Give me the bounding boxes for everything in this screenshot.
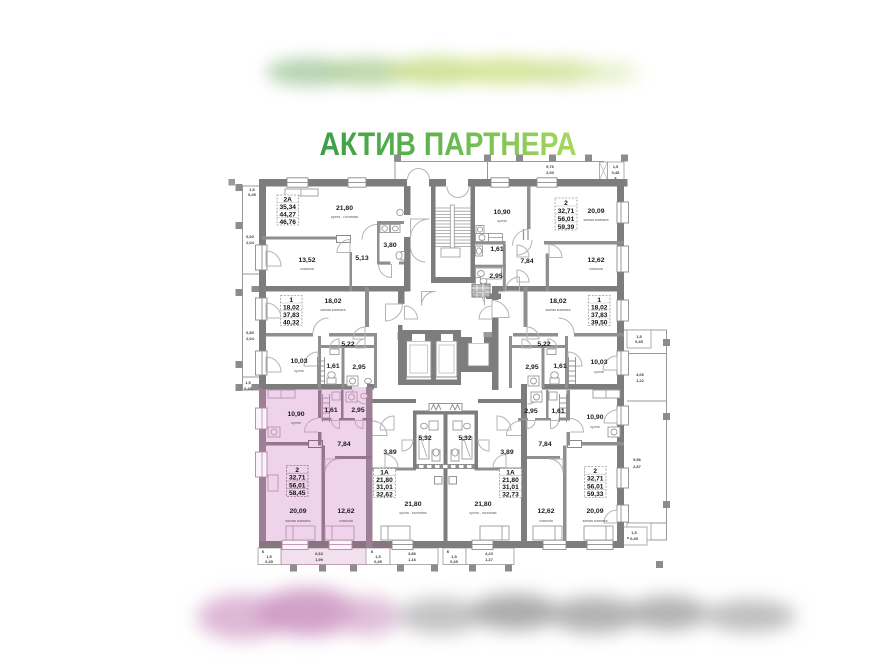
svg-text:спальня: спальня [339, 519, 353, 523]
svg-text:спальня: спальня [589, 267, 603, 271]
svg-text:39,50: 39,50 [591, 319, 608, 326]
svg-text:10,90: 10,90 [586, 414, 603, 421]
svg-text:3,80: 3,80 [383, 242, 396, 249]
svg-text:18,02: 18,02 [283, 304, 300, 311]
svg-text:0,45: 0,45 [374, 559, 383, 564]
svg-text:18,02: 18,02 [591, 304, 608, 311]
svg-text:2,04: 2,04 [246, 240, 255, 245]
svg-text:35,34: 35,34 [279, 204, 296, 211]
svg-text:31,01: 31,01 [376, 484, 393, 491]
svg-text:1,5: 1,5 [245, 380, 251, 385]
svg-text:3,86: 3,86 [408, 551, 417, 556]
svg-text:40,32: 40,32 [283, 319, 300, 326]
svg-text:0,45: 0,45 [244, 386, 253, 391]
svg-text:10,03: 10,03 [590, 359, 607, 366]
svg-text:18,02: 18,02 [549, 298, 566, 305]
svg-text:кухня - гостиная: кухня - гостиная [331, 215, 358, 219]
svg-text:3,89: 3,89 [500, 449, 513, 456]
svg-text:2,95: 2,95 [352, 364, 365, 371]
svg-text:5,13: 5,13 [355, 255, 368, 262]
svg-text:жилая комната: жилая комната [545, 308, 570, 312]
svg-text:21,80: 21,80 [336, 205, 353, 212]
svg-text:59,39: 59,39 [558, 224, 575, 231]
svg-text:7,84: 7,84 [520, 258, 533, 265]
svg-text:32,62: 32,62 [376, 491, 393, 498]
svg-text:4,06: 4,06 [636, 372, 645, 377]
svg-text:21,80: 21,80 [376, 477, 393, 484]
svg-text:13,52: 13,52 [298, 257, 315, 264]
svg-text:2,95: 2,95 [351, 407, 364, 414]
svg-text:44,27: 44,27 [279, 211, 296, 218]
svg-text:10,90: 10,90 [493, 209, 510, 216]
svg-text:1,99: 1,99 [315, 557, 324, 562]
svg-text:жилая комната: жилая комната [285, 519, 310, 523]
svg-text:5,22: 5,22 [341, 341, 354, 348]
svg-text:31,01: 31,01 [502, 484, 519, 491]
svg-text:жилая комната: жилая комната [582, 519, 607, 523]
svg-text:спальня: спальня [300, 267, 314, 271]
svg-text:21,80: 21,80 [502, 477, 519, 484]
svg-text:7,84: 7,84 [538, 441, 551, 448]
svg-text:0,45: 0,45 [450, 559, 459, 564]
svg-text:спальня: спальня [539, 519, 553, 523]
svg-text:5,32: 5,32 [458, 435, 471, 442]
svg-text:2: 2 [295, 467, 299, 474]
svg-text:37,83: 37,83 [283, 312, 300, 319]
svg-text:1,16: 1,16 [408, 557, 417, 562]
svg-text:7,84: 7,84 [337, 441, 350, 448]
svg-text:2,95: 2,95 [489, 273, 502, 280]
svg-text:20,09: 20,09 [289, 508, 306, 515]
svg-text:21,80: 21,80 [474, 501, 491, 508]
svg-text:1,27: 1,27 [485, 557, 494, 562]
svg-text:32,71: 32,71 [558, 208, 575, 215]
svg-text:9,76: 9,76 [546, 164, 555, 169]
svg-text:кухня: кухня [594, 370, 603, 374]
svg-text:2,93: 2,93 [546, 170, 555, 175]
svg-text:кухня: кухня [291, 421, 300, 425]
svg-text:1: 1 [597, 297, 601, 304]
svg-text:59,33: 59,33 [587, 491, 604, 498]
svg-text:32,73: 32,73 [502, 491, 519, 498]
svg-text:кухня: кухня [497, 219, 506, 223]
svg-text:к: к [627, 535, 629, 540]
svg-text:5,22: 5,22 [537, 341, 550, 348]
svg-text:2: 2 [593, 468, 597, 475]
svg-text:кухня - гостиная: кухня - гостиная [400, 511, 427, 515]
svg-text:10,90: 10,90 [287, 411, 304, 418]
svg-text:18,02: 18,02 [324, 298, 341, 305]
svg-text:1,61: 1,61 [324, 407, 337, 414]
svg-text:кухня - гостиная: кухня - гостиная [470, 511, 497, 515]
svg-text:32,71: 32,71 [289, 475, 306, 482]
svg-text:20,09: 20,09 [586, 508, 603, 515]
svg-text:1,61: 1,61 [553, 363, 566, 370]
svg-text:2,95: 2,95 [525, 364, 538, 371]
svg-text:3,89: 3,89 [383, 449, 396, 456]
svg-text:12,62: 12,62 [337, 508, 354, 515]
svg-text:6,60: 6,60 [246, 234, 255, 239]
svg-text:2: 2 [564, 200, 568, 207]
svg-text:1,22: 1,22 [636, 378, 645, 383]
svg-text:1А: 1А [380, 470, 389, 477]
svg-text:20,09: 20,09 [587, 208, 604, 215]
svg-text:5,32: 5,32 [418, 435, 431, 442]
svg-text:12,62: 12,62 [587, 257, 604, 264]
svg-text:2,87: 2,87 [633, 464, 642, 469]
svg-text:жилая комната: жилая комната [320, 308, 345, 312]
svg-text:АКТИВ ПАРТНЕРА: АКТИВ ПАРТНЕРА [320, 126, 577, 162]
svg-text:1,61: 1,61 [490, 246, 503, 253]
svg-text:2,04: 2,04 [246, 336, 255, 341]
svg-text:56,01: 56,01 [587, 483, 604, 490]
svg-text:1,61: 1,61 [326, 363, 339, 370]
svg-text:21,80: 21,80 [404, 501, 421, 508]
svg-text:2,95: 2,95 [524, 408, 537, 415]
svg-text:56,01: 56,01 [558, 216, 575, 223]
svg-text:1: 1 [289, 297, 293, 304]
svg-text:2А: 2А [283, 196, 292, 203]
svg-text:жилая комната: жилая комната [583, 218, 608, 222]
svg-text:1А: 1А [506, 470, 515, 477]
svg-text:4,23: 4,23 [485, 551, 494, 556]
svg-text:32,71: 32,71 [587, 476, 604, 483]
svg-text:10,03: 10,03 [290, 358, 307, 365]
svg-text:0,45: 0,45 [248, 192, 257, 197]
svg-text:9,56: 9,56 [633, 457, 642, 462]
svg-text:56,01: 56,01 [289, 482, 306, 489]
svg-text:12,62: 12,62 [537, 508, 554, 515]
svg-text:1,61: 1,61 [551, 408, 564, 415]
svg-text:0,45: 0,45 [630, 536, 639, 541]
svg-text:6,63: 6,63 [315, 551, 324, 556]
svg-text:6,80: 6,80 [246, 330, 255, 335]
svg-text:кухня: кухня [590, 425, 599, 429]
svg-text:0,45: 0,45 [635, 339, 644, 344]
svg-text:1,5: 1,5 [613, 164, 619, 169]
svg-text:1,5: 1,5 [631, 530, 637, 535]
svg-text:37,83: 37,83 [591, 312, 608, 319]
svg-text:46,76: 46,76 [279, 219, 296, 226]
svg-text:58,45: 58,45 [289, 490, 306, 497]
svg-text:кухня: кухня [294, 369, 303, 373]
svg-text:0,45: 0,45 [265, 559, 274, 564]
